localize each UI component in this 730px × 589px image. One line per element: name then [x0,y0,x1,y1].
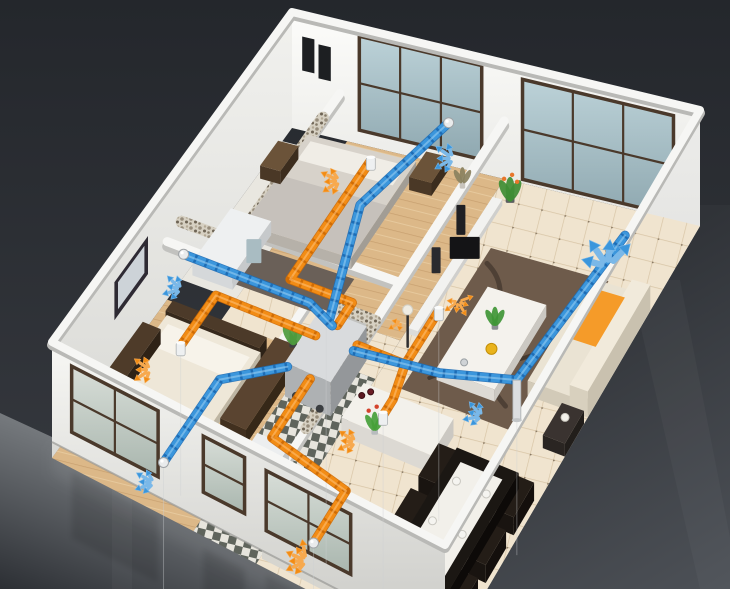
supply-diffuser-kitchen-body [379,412,388,425]
wall-art-2 [319,44,331,81]
supply-diffuser-kitchen [379,411,388,426]
exhaust-diffuser-dining-body [513,380,521,420]
arrow-tail [304,548,305,556]
supply-diffuser-hall-cap [434,306,443,310]
exhaust-diffuser-dining-base [512,418,522,422]
supply-diffuser-bedroom [176,341,185,356]
outdoor-vent-supply-body [309,538,319,548]
arrow-tail [462,298,468,300]
arrow-tail [169,291,176,293]
supply-diffuser-bedroom-cap [176,341,185,345]
outdoor-vent-exhaust [159,457,169,467]
wine-bottle-shape [359,393,365,399]
supply-diffuser-master [366,155,375,170]
living-orchid-flower [502,177,506,181]
master-tv-screen [456,205,465,235]
bathroom-mirror [246,239,261,263]
arrow-tail [351,434,353,439]
hrv-port [316,405,324,413]
arrow-tail [470,417,477,418]
exhaust-diffuser-master [444,118,454,128]
living-orchid-flower [515,180,519,184]
arrow-tail [146,362,148,367]
living-tv-shape [450,237,480,259]
outdoor-vent-exhaust-body [159,457,169,467]
supply-diffuser-master-cap [366,155,375,159]
bathroom-mirror-shape [246,239,261,263]
floor-lamp-shade [403,305,413,315]
floor-lamp-shape [406,310,409,348]
table-lamp-shape [561,413,569,421]
wine-bottle [359,393,365,399]
plate [428,517,436,525]
supply-diffuser-hall [434,306,443,321]
arrow-tail [147,373,149,378]
master-tv-screen-2-shape [432,247,441,273]
supply-diffuser-kitchen-cap [379,411,388,415]
master-tv-screen-2 [432,247,441,273]
exhaust-diffuser-bedroom [179,249,189,259]
supply-diffuser-hall-body [434,308,443,321]
yellow-bowl-shape [486,343,497,354]
table-lamp [561,413,569,421]
floor-lamp-shade-shape [403,305,413,315]
yellow-bowl [486,343,497,354]
arrow-tail [178,281,179,286]
exhaust-diffuser-master-body [444,118,454,128]
outdoor-vent-supply [309,538,319,548]
floor-lamp [406,310,409,348]
wine-bottle-2 [368,389,374,395]
living-tv [450,237,480,259]
plate [452,477,460,485]
table-decor [461,359,468,366]
wall-art-1 [302,37,314,74]
outdoor-vent-exhaust-shine [160,459,163,462]
exhaust-diffuser-bedroom-body [179,249,189,259]
exhaust-diffuser-master-shine [446,120,449,123]
arrow-tail [149,475,152,480]
kitchen-plant-flower [375,405,379,409]
arrow-tail [592,262,602,265]
living-orchid-flower [510,173,514,177]
arrow-tail [480,408,481,413]
wine-bottle-2-shape [368,389,374,395]
exhaust-diffuser-dining [512,380,522,422]
arrow-tail [608,250,609,260]
outdoor-vent-supply-shine [310,540,313,543]
floorplan-3d-svg [0,0,730,589]
arrow-tail [450,149,452,155]
kitchen-plant-flower [367,409,371,413]
hvac-floorplan-render [0,0,730,589]
table-decor-shape [461,359,468,366]
supply-diffuser-bedroom-body [176,343,185,356]
supply-diffuser-master-body [366,157,375,170]
master-tv-screen-shape [456,205,465,235]
exhaust-diffuser-bedroom-shine [180,251,183,254]
